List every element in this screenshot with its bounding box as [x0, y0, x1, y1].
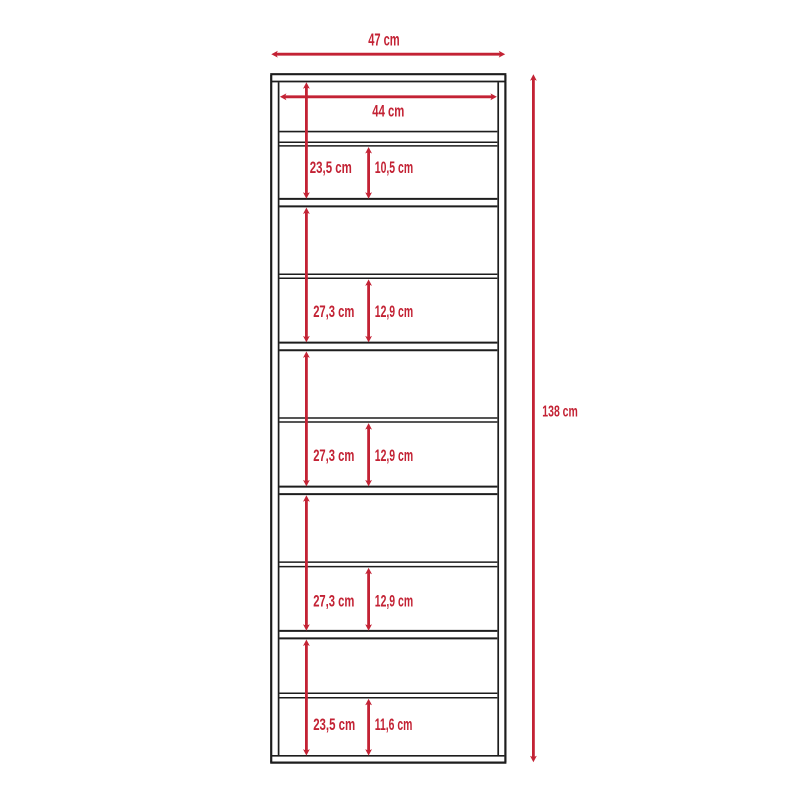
svg-text:23,5 cm: 23,5 cm	[310, 158, 352, 177]
svg-text:12,9 cm: 12,9 cm	[375, 592, 413, 611]
svg-text:10,5 cm: 10,5 cm	[375, 158, 413, 177]
svg-text:23,5 cm: 23,5 cm	[313, 715, 355, 734]
svg-text:27,3 cm: 27,3 cm	[313, 446, 354, 465]
svg-text:27,3 cm: 27,3 cm	[313, 302, 354, 321]
svg-text:44 cm: 44 cm	[372, 101, 404, 120]
svg-text:12,9 cm: 12,9 cm	[375, 302, 413, 321]
svg-text:11,6 cm: 11,6 cm	[375, 715, 413, 734]
svg-text:12,9 cm: 12,9 cm	[375, 446, 413, 465]
svg-text:138 cm: 138 cm	[542, 404, 578, 421]
svg-text:47 cm: 47 cm	[368, 29, 400, 49]
svg-text:27,3 cm: 27,3 cm	[313, 592, 354, 611]
